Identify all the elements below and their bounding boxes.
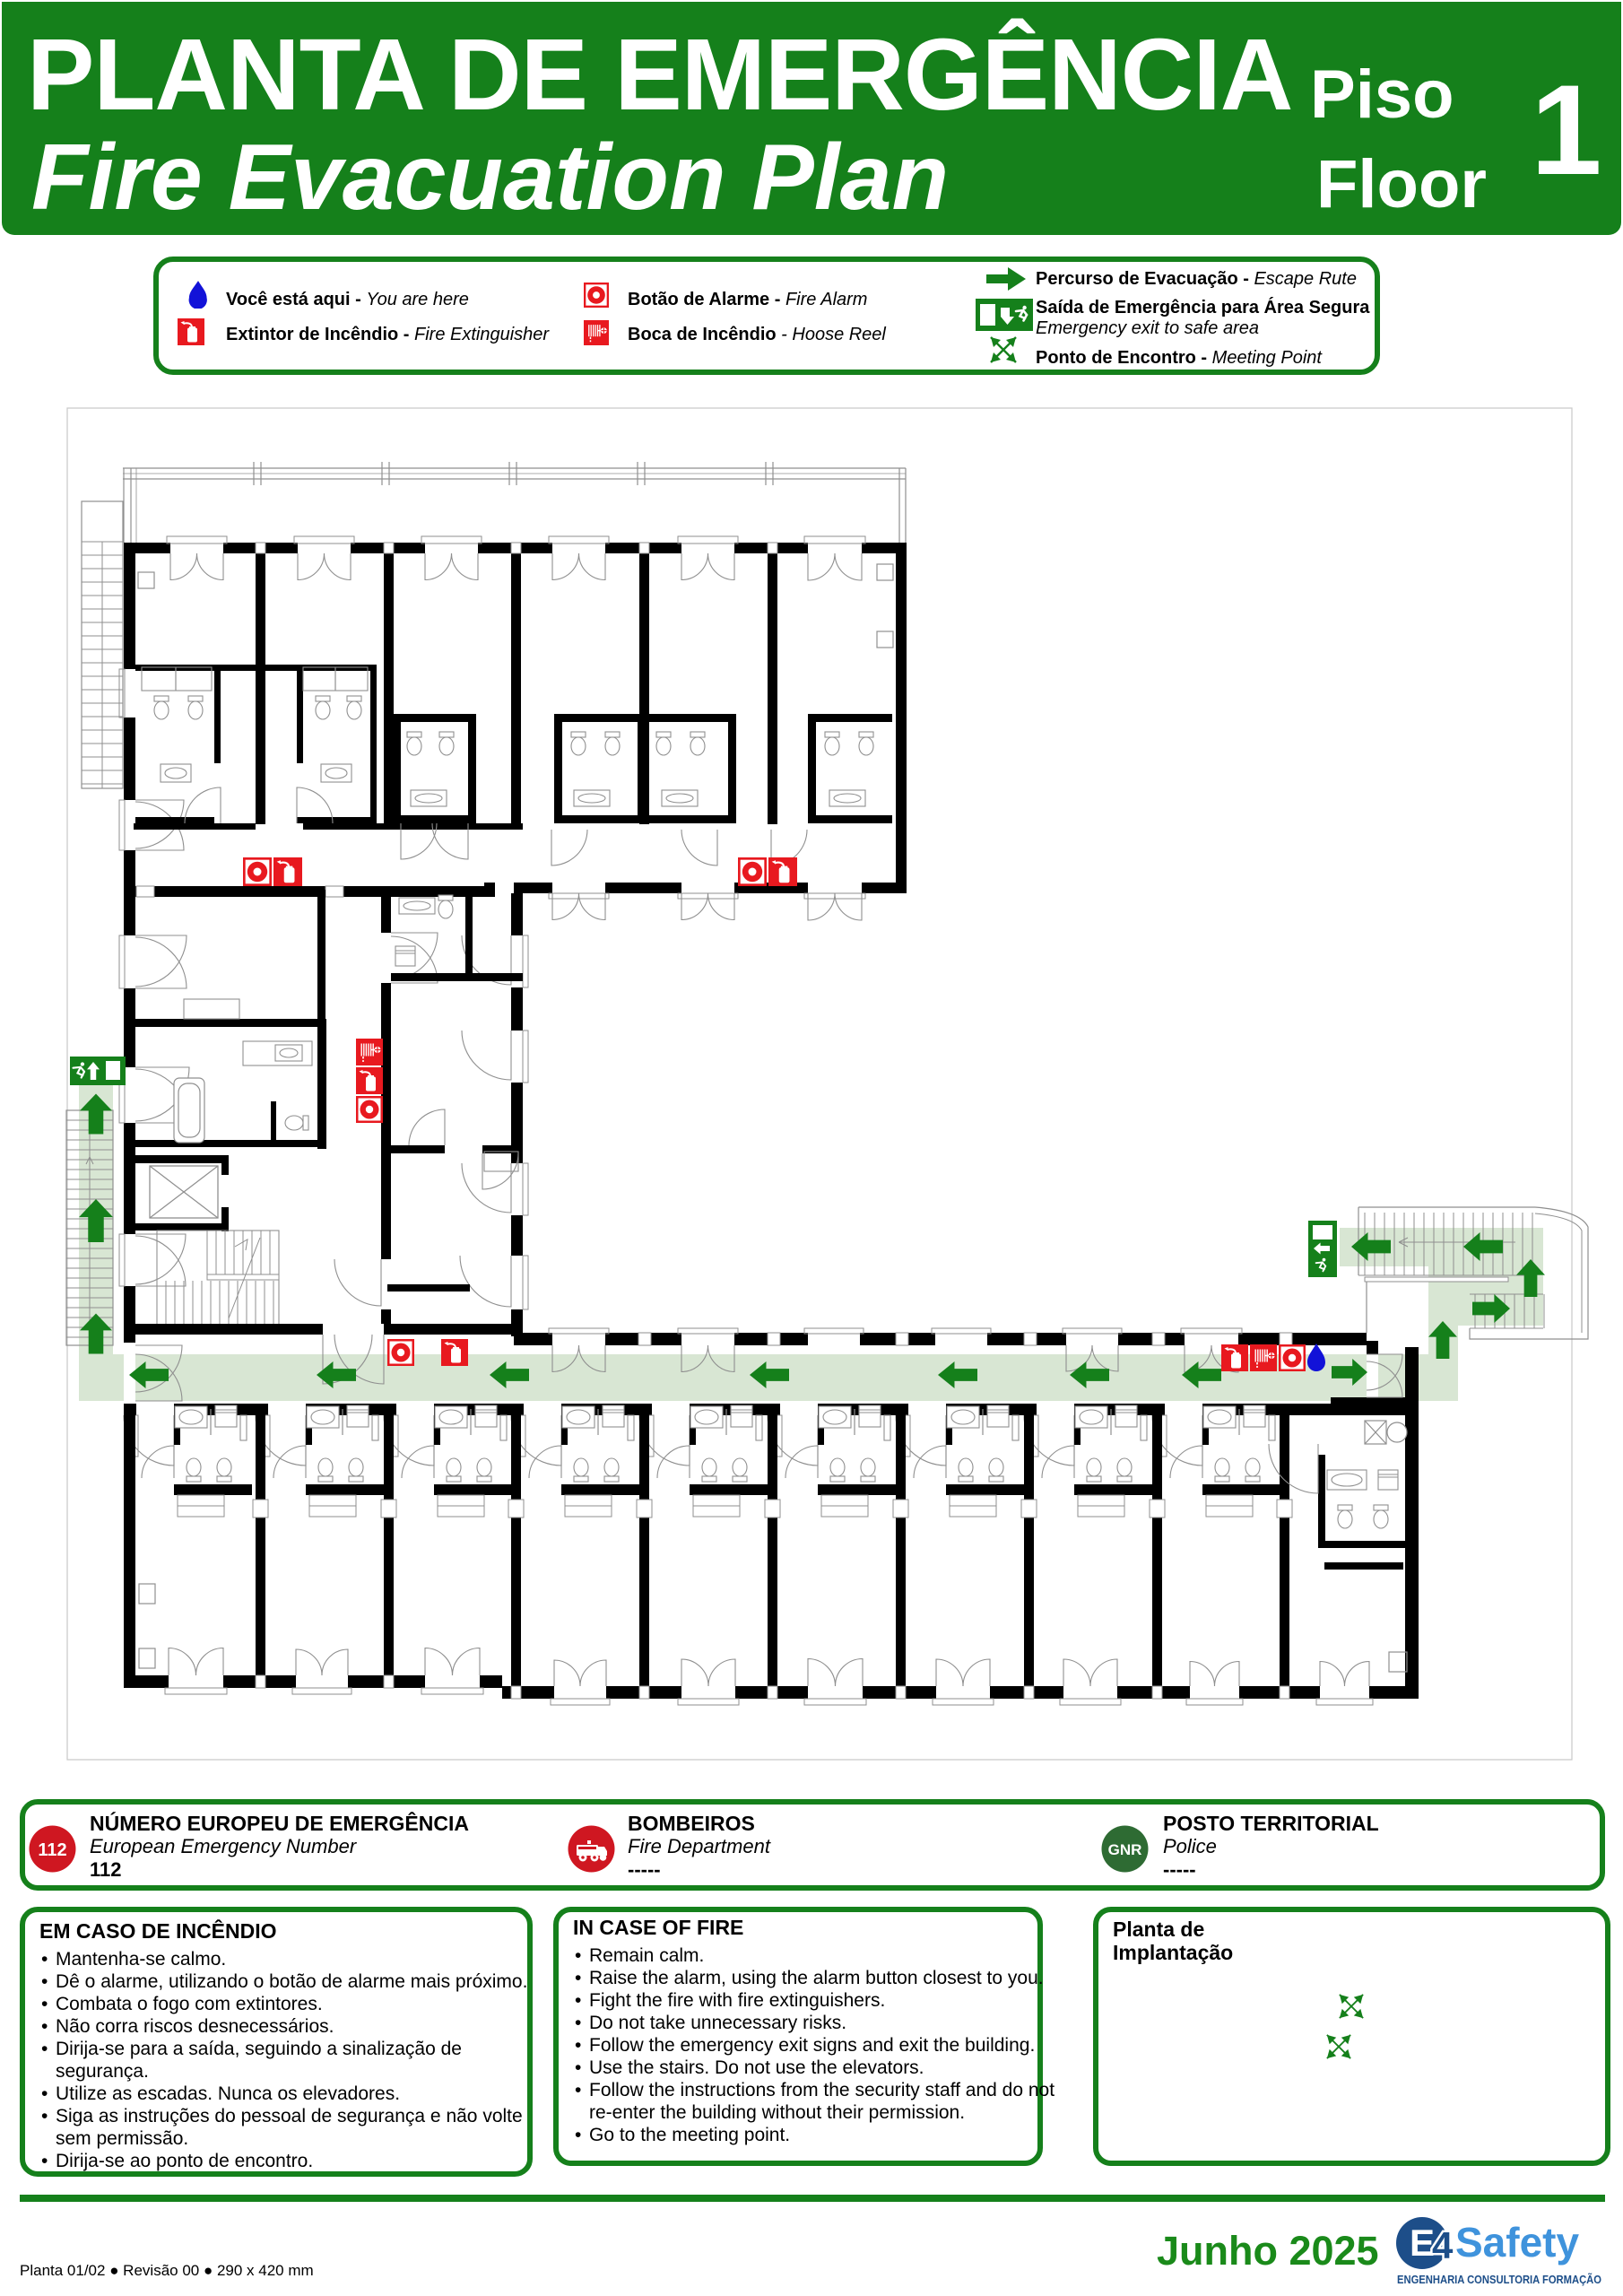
svg-text:ENGENHARIA CONSULTORIA FORMA: ENGENHARIA CONSULTORIA FORMAÇÃO (1397, 2273, 1601, 2286)
svg-text:Safety: Safety (1455, 2219, 1579, 2266)
svg-text:112: 112 (38, 1840, 66, 1860)
svg-text:GNR: GNR (1108, 1841, 1142, 1858)
svg-text:4: 4 (1432, 2224, 1454, 2266)
svg-text:E: E (1410, 2222, 1435, 2264)
